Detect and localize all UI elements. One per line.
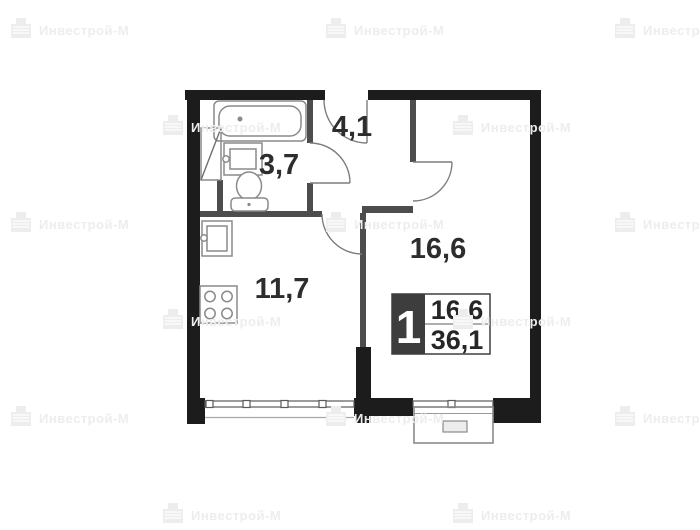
balcony [414,407,493,443]
badge-living-area: 16,6 [431,295,484,325]
sink-tap [223,156,229,162]
window-mullion [281,401,288,408]
badge-rooms-count: 1 [396,301,422,353]
stove-icon [200,286,237,323]
sink-icon [223,143,262,175]
wall-top-right [368,90,541,100]
hallway-living-wall-bottom [362,206,413,213]
room-label-bathroom: 3,7 [259,149,299,181]
window-mullion [319,401,326,408]
wall-right [530,90,541,400]
kitchen-sink-icon [201,221,232,256]
wall-corner-bottom-right [493,398,541,423]
living-room-door-swing-arc [413,162,452,201]
badge-total-area: 36,1 [431,325,484,355]
room-label-kitchen: 11,7 [255,273,310,305]
wall-corner-bottom-left [187,398,205,424]
windows [205,401,493,418]
vent-shaft-diagonal [201,128,221,180]
bathtub-drain [238,117,243,122]
bathtub-icon [214,101,306,141]
floor-plan: 4,1 3,7 16,6 11,7 1 16,6 36,1 [0,0,700,525]
stove-body [200,286,237,323]
room-label-living-room: 16,6 [410,233,466,265]
shaft-wall-stub [217,180,223,214]
toilet-flush-dot [247,203,250,206]
kitchen-window [205,401,354,407]
bathtub-inner [219,106,301,136]
floor-plan-canvas: 4,1 3,7 16,6 11,7 1 16,6 36,1 [0,0,700,525]
toilet-bowl [237,172,262,200]
wall-left [187,90,200,400]
window-mullion [206,401,213,408]
hallway-living-wall-upper [410,100,416,162]
balcony-handle [443,421,467,432]
room-label-hallway: 4,1 [332,111,372,143]
bathroom-wall-upper [307,100,313,143]
vent-shaft-icon [201,128,221,180]
apartment-summary-badge: 1 16,6 36,1 [392,294,490,355]
bathroom-door-swing-arc [310,143,350,183]
kitchen-sink-tap [201,235,207,241]
window-mullion [243,401,250,408]
kitchen-living-wall [360,213,366,347]
kitchen-door-swing-arc [322,214,362,254]
wall-top-left [185,90,325,100]
wall-bottom-middle [354,398,413,416]
